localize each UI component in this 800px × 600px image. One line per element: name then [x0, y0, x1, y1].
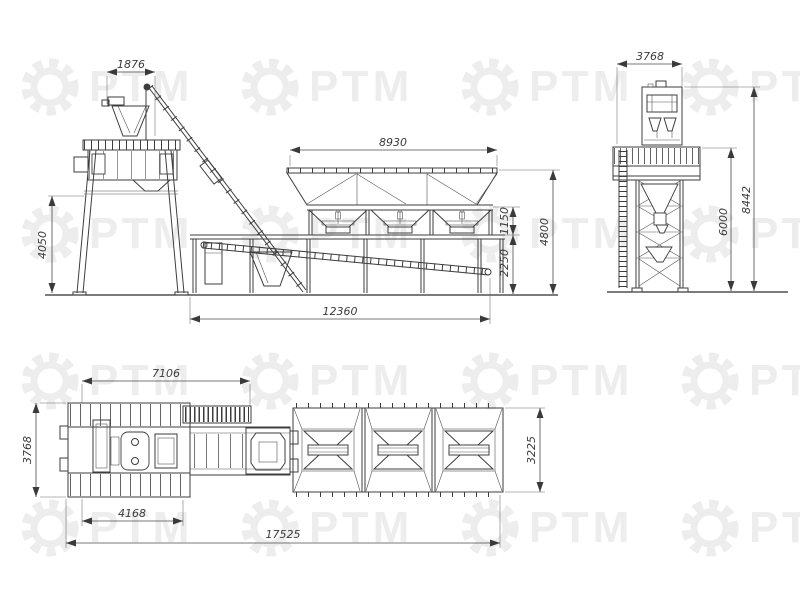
- plan-aggregate-bins: [293, 406, 503, 495]
- end-mixer-housing: [642, 81, 682, 145]
- dim-mixer-section-length: 7106: [82, 367, 250, 406]
- dim-frame-height: 4050: [36, 196, 84, 293]
- skip-pulley: [144, 84, 151, 91]
- dim-text-overall-height: 8442: [740, 186, 753, 214]
- dim-text-bins-total-height: 4800: [538, 218, 551, 246]
- bin-funnel: [309, 210, 367, 233]
- plan-transfer-box: [246, 428, 290, 474]
- dim-text-bins-width: 3225: [525, 436, 538, 464]
- dim-text-overall-length: 17525: [266, 528, 301, 541]
- mixer-discharge-funnel: [133, 180, 170, 191]
- dim-text-bins-discharge: 1150: [498, 207, 511, 235]
- skip-charge-box: [108, 97, 124, 105]
- dim-overall-length: 17525: [66, 495, 500, 548]
- dim-support-spacing: 4168: [82, 499, 183, 526]
- dim-base-length: 12360: [190, 278, 490, 324]
- side-view: 1876 8930 4050 1150 2250: [36, 58, 560, 324]
- dim-overall-height: 8442: [684, 87, 760, 291]
- plan-conveyor: [190, 427, 298, 475]
- dim-text-frame-height: 4050: [36, 231, 49, 259]
- plan-view: 7106 3768 3225 4168 17525: [21, 367, 545, 548]
- transfer-hopper: [250, 252, 292, 286]
- side-aggregate-bins: [287, 168, 497, 235]
- dim-text-overall-width: 3768: [21, 436, 34, 464]
- end-view: 3768 6000 8442: [607, 50, 788, 292]
- dim-text-platform-height: 6000: [717, 208, 730, 236]
- bin-funnel: [371, 210, 429, 233]
- dim-text-clearance: 2250: [498, 249, 511, 277]
- dim-bins-discharge: 1150: [493, 207, 520, 235]
- dim-platform-height: 6000: [702, 148, 737, 291]
- dim-text-base-length: 12360: [323, 305, 358, 318]
- dim-bins-width: 3225: [505, 408, 545, 492]
- plan-mixer-unit: [60, 403, 190, 497]
- technical-drawing: РТМРТМРТМРТМРТМРТМРТМРТМРТМРТМРТМРТМРТМР…: [0, 0, 800, 600]
- weigh-hopper: [641, 184, 678, 213]
- dim-text-support-spacing: 4168: [118, 507, 146, 520]
- plan-walkway: [183, 406, 251, 423]
- dim-text-skip-hopper-width: 1876: [117, 58, 145, 71]
- end-lattice-tower: [632, 180, 688, 292]
- side-belt-conveyor: [201, 242, 491, 275]
- dim-text-bins-length: 8930: [379, 136, 407, 149]
- plan-bin-cell: [294, 409, 360, 491]
- dim-text-mixer-section-length: 7106: [152, 367, 180, 380]
- dim-bins-length: 8930: [290, 136, 497, 166]
- lower-hopper: [646, 247, 672, 262]
- side-support-frame: [190, 235, 505, 293]
- dim-overall-width: 3768: [21, 403, 66, 497]
- charging-hopper: [112, 106, 149, 136]
- dim-text-top-width: 3768: [636, 50, 664, 63]
- plan-bin-cell: [366, 409, 431, 491]
- end-ladder: [619, 150, 627, 288]
- plan-bin-cell: [436, 409, 502, 491]
- bin-funnel: [433, 210, 491, 233]
- three-view-drawing: 1876 8930 4050 1150 2250: [0, 0, 800, 600]
- bins-body: [287, 173, 497, 205]
- side-skip-track: [149, 86, 306, 292]
- side-mixer-tower: [73, 84, 188, 296]
